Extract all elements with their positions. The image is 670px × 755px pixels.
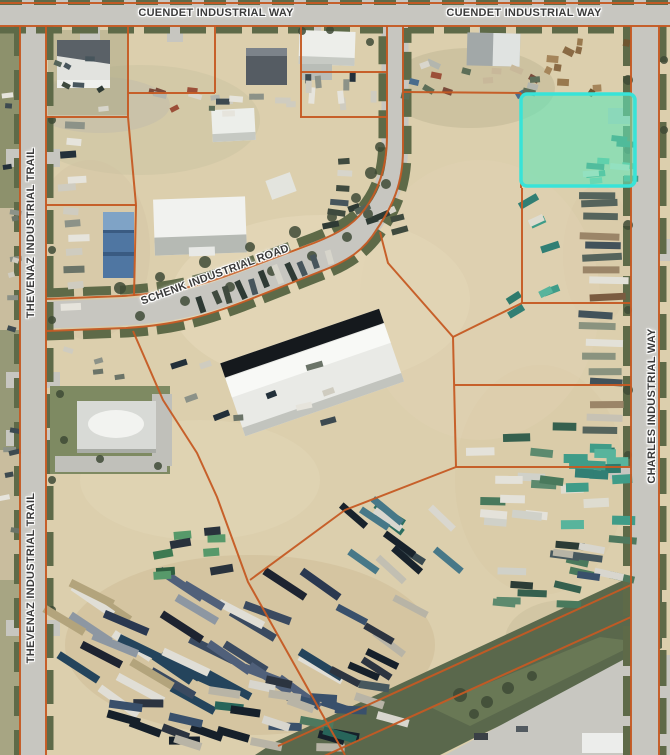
- highlight-parcel[interactable]: [521, 94, 635, 186]
- map-canvas: [0, 0, 670, 755]
- building: [246, 48, 287, 85]
- building: [467, 32, 521, 66]
- office-building: [50, 386, 172, 474]
- building: [103, 212, 134, 278]
- map-viewport[interactable]: CUENDET INDUSTRIAL WAY CUENDET INDUSTRIA…: [0, 0, 670, 755]
- building: [153, 196, 247, 257]
- building: [298, 30, 355, 66]
